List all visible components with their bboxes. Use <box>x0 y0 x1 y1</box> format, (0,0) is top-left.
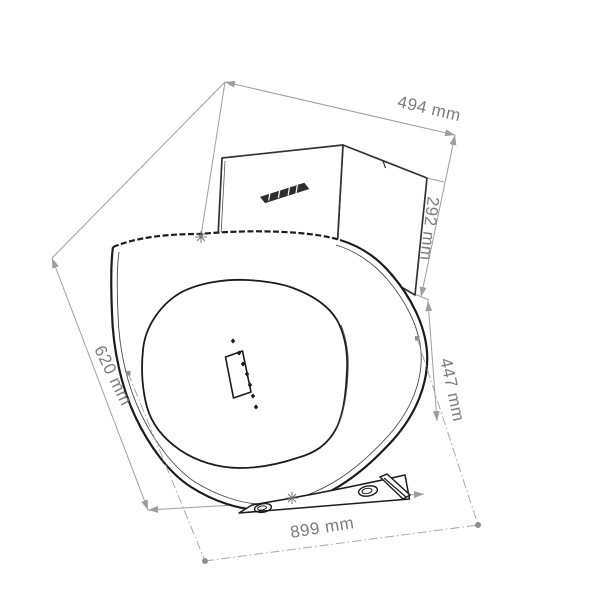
extension-tick-chimney <box>427 178 444 182</box>
snap-point-square <box>415 336 420 341</box>
drawing-canvas: 494 mm 292 mm 620 mm 447 mm 899 mm <box>0 0 600 600</box>
dimension-label-top-depth: 494 mm <box>396 92 463 125</box>
hood-body <box>111 231 427 510</box>
centerline-endpoint-dot <box>475 522 481 528</box>
dimension-label-bottom-width: 899 mm <box>289 513 356 542</box>
extension-line-left <box>52 82 225 258</box>
centerline-endpoint-dot <box>202 558 208 564</box>
snap-point-square <box>126 371 131 376</box>
hood-dimension-drawing: 494 mm 292 mm 620 mm 447 mm 899 mm <box>0 0 600 600</box>
hood-front-panel-fill <box>111 231 427 510</box>
dimension-line-447 <box>428 301 437 421</box>
